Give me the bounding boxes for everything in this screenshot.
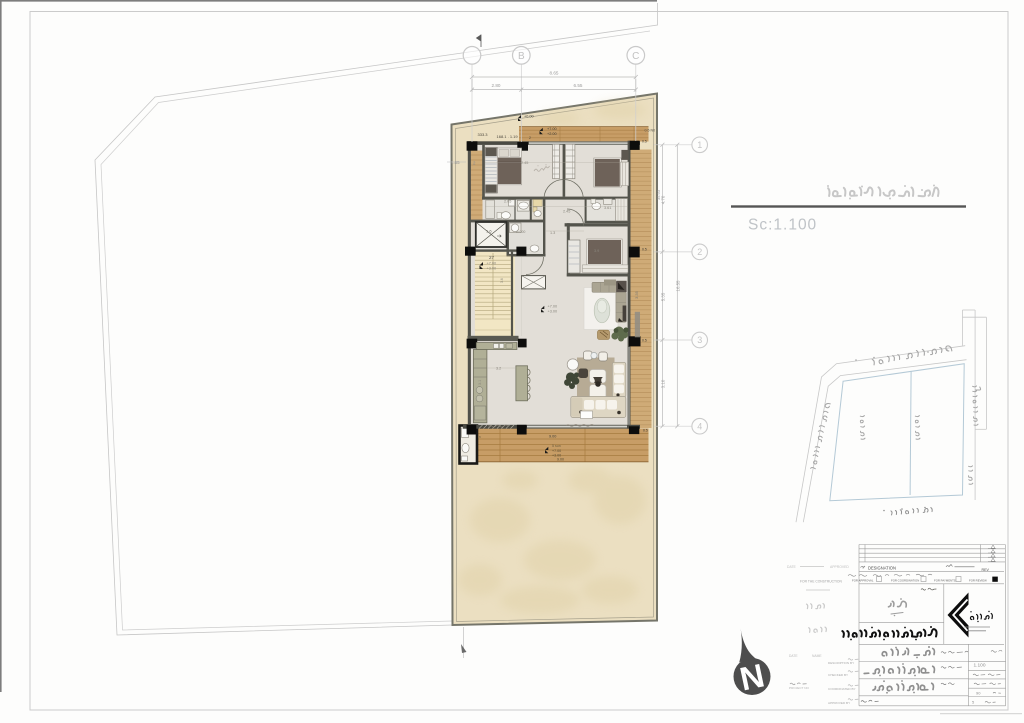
- svg-text:333.3: 333.3: [478, 132, 489, 137]
- svg-text:90: 90: [976, 691, 981, 696]
- svg-text:DESCRIPTION BY: DESCRIPTION BY: [828, 661, 854, 665]
- svg-text:3.10: 3.10: [661, 379, 666, 388]
- svg-text:NAME: NAME: [812, 654, 822, 658]
- svg-text:2.45: 2.45: [563, 210, 570, 214]
- svg-text:2.45: 2.45: [521, 161, 528, 165]
- svg-text:FOR APPROVAL: FOR APPROVAL: [852, 578, 874, 582]
- svg-text:PROJECT NO: PROJECT NO: [789, 686, 809, 690]
- svg-text:CHECKED BY: CHECKED BY: [828, 673, 848, 677]
- svg-text:APPROVED: APPROVED: [830, 565, 849, 569]
- svg-text:3.1: 3.1: [478, 380, 482, 385]
- svg-text:35.93: 35.93: [656, 189, 661, 200]
- svg-text:0.5: 0.5: [642, 248, 647, 252]
- svg-text:9.00: 9.00: [549, 435, 556, 439]
- svg-text:1.100: 1.100: [974, 663, 986, 669]
- svg-text:3: 3: [697, 335, 702, 345]
- svg-text:+0.00: +0.00: [524, 115, 534, 119]
- svg-text:COORDINATED BY: COORDINATED BY: [828, 687, 856, 691]
- svg-text:9.00: 9.00: [557, 458, 564, 462]
- svg-text:3.6: 3.6: [500, 278, 504, 283]
- svg-text:1.3: 1.3: [550, 231, 555, 235]
- svg-text:0.5: 0.5: [642, 339, 647, 343]
- svg-text:w.000: w.000: [516, 230, 525, 234]
- svg-text:0.5: 0.5: [643, 429, 648, 433]
- svg-text:168.1 . 1.19: 168.1 . 1.19: [497, 134, 519, 139]
- svg-text:2: 2: [697, 247, 702, 257]
- svg-text:1.6: 1.6: [486, 229, 492, 234]
- svg-text:Sc:1.100: Sc:1.100: [748, 217, 817, 234]
- svg-text:5 sun: 5 sun: [552, 444, 561, 448]
- svg-text:+7.00: +7.00: [547, 127, 557, 131]
- svg-text:+3.00: +3.00: [548, 310, 558, 314]
- svg-text:FOR REVIEW: FOR REVIEW: [969, 578, 987, 582]
- svg-text:3.9: 3.9: [594, 249, 599, 253]
- svg-text:DATE: DATE: [787, 565, 797, 569]
- svg-text:FOR THE CONSTRUCTION: FOR THE CONSTRUCTION: [800, 580, 843, 584]
- svg-text:2.05: 2.05: [504, 200, 511, 204]
- svg-text:FOR COORDINATION: FOR COORDINATION: [891, 578, 919, 582]
- svg-text:+7.00: +7.00: [548, 305, 558, 309]
- svg-text:+7.00: +7.00: [552, 449, 561, 453]
- svg-text:C: C: [632, 51, 639, 62]
- svg-text:2.80: 2.80: [492, 83, 501, 88]
- svg-text:4: 4: [697, 421, 702, 431]
- svg-text:REV: REV: [982, 568, 990, 572]
- svg-text:+2.00: +2.00: [547, 132, 557, 136]
- svg-text:0.5 N0: 0.5 N0: [645, 129, 656, 133]
- svg-text:+3.00: +3.00: [487, 267, 497, 271]
- svg-text:27: 27: [489, 255, 495, 260]
- svg-text:FOR PAYMENTS: FOR PAYMENTS: [934, 578, 956, 582]
- svg-text:ln: ln: [478, 435, 481, 439]
- svg-text:16.55: 16.55: [676, 280, 681, 292]
- svg-text:3.61: 3.61: [604, 206, 611, 210]
- svg-text:+7.00: +7.00: [487, 262, 497, 266]
- svg-text:APPROVED BY: APPROVED BY: [828, 701, 850, 705]
- svg-text:6.55: 6.55: [574, 83, 583, 88]
- svg-text:5.35: 5.35: [661, 292, 666, 301]
- svg-text:0.5: 0.5: [642, 140, 647, 144]
- svg-text:5: 5: [972, 700, 975, 705]
- svg-text:2: 2: [529, 136, 531, 140]
- svg-text:B: B: [518, 51, 525, 62]
- svg-text:DATE: DATE: [789, 654, 798, 658]
- svg-text:3.2: 3.2: [496, 367, 501, 371]
- svg-text:8.65: 8.65: [550, 71, 559, 76]
- svg-text:3.35: 3.35: [634, 290, 639, 299]
- svg-text:1.65: 1.65: [451, 160, 460, 165]
- svg-text:4.70: 4.70: [661, 195, 666, 204]
- svg-text:1: 1: [697, 140, 702, 150]
- svg-text:DESIGNATION: DESIGNATION: [868, 566, 896, 571]
